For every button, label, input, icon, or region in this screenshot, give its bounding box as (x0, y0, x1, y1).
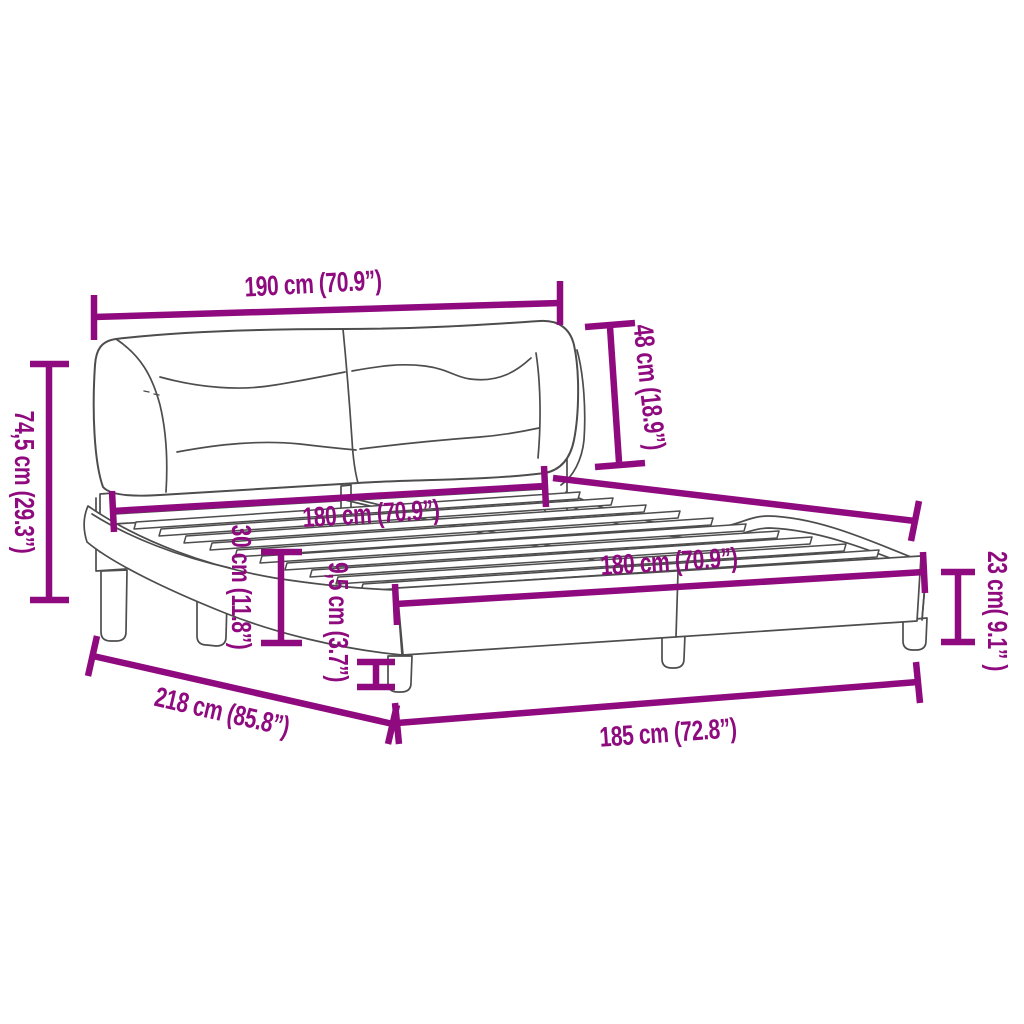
dim-label-headboard-width: 190 cm (70.9”) (244, 266, 382, 301)
right-leg (903, 618, 927, 650)
dim-label-frame-side-height: 23 cm( 9.1” ) (983, 551, 1011, 671)
dim-frame-side-height (941, 572, 975, 642)
dim-label-ground-clearance: 9,5 cm (3.7”) (324, 562, 352, 682)
bed-frame-line-art (0, 0, 1024, 1024)
diagram-canvas: 190 cm (70.9”) 48 cm (18.9”) 74,5 cm (29… (0, 0, 1024, 1024)
headboard-cushion (94, 321, 578, 496)
dim-label-side-rail-height: 30 cm (11.8”) (227, 525, 255, 650)
middle-leg (662, 634, 685, 668)
dim-label-total-height: 74,5 cm (29.3”) (10, 411, 38, 554)
headboard-leg (101, 570, 127, 641)
